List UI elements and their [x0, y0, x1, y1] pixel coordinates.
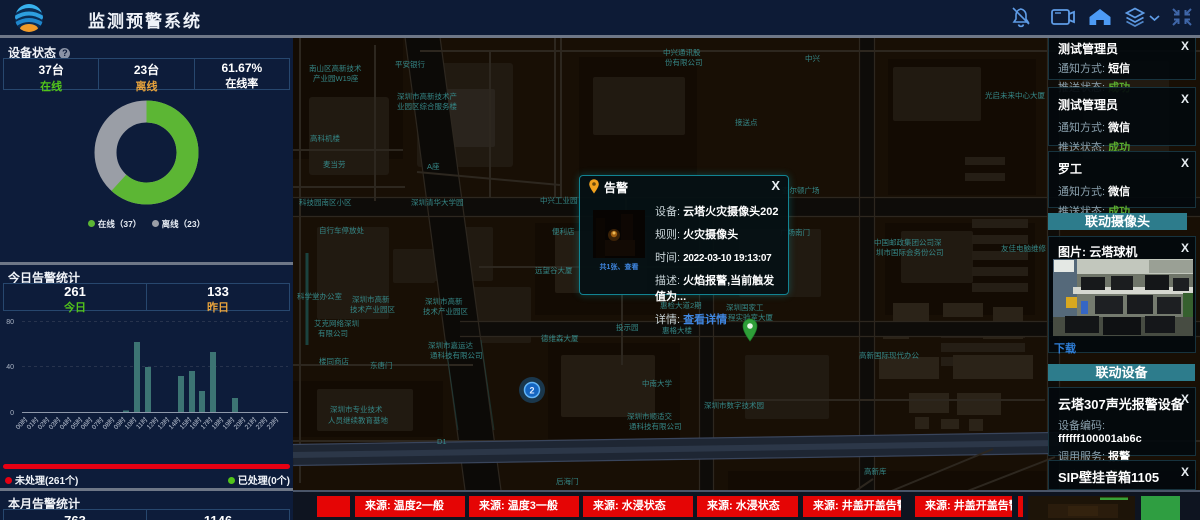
svg-text:德维森大厦: 德维森大厦 — [541, 333, 579, 343]
svg-text:通科技有限公司: 通科技有限公司 — [629, 421, 682, 431]
svg-text:深圳市高新: 深圳市高新 — [425, 296, 463, 306]
svg-text:东唐门: 东唐门 — [370, 360, 393, 370]
svg-text:高新库: 高新库 — [864, 466, 887, 476]
svg-text:中兴: 中兴 — [805, 53, 820, 63]
svg-text:中南大学: 中南大学 — [642, 378, 672, 388]
svg-text:圳市国际会务份公司: 圳市国际会务份公司 — [876, 247, 944, 257]
svg-text:科技园南区小区: 科技园南区小区 — [299, 197, 352, 207]
svg-text:0: 0 — [10, 410, 14, 417]
svg-text:楼同商店: 楼同商店 — [319, 356, 349, 366]
svg-text:平安银行: 平安银行 — [395, 59, 425, 69]
svg-text:80: 80 — [6, 319, 14, 326]
svg-text:A座: A座 — [427, 161, 440, 171]
svg-text:南山区高新技术: 南山区高新技术 — [309, 63, 362, 73]
svg-text:高科机楼: 高科机楼 — [310, 133, 340, 143]
svg-text:业园区综合服务楼: 业园区综合服务楼 — [397, 101, 457, 111]
svg-text:中国邮政集团公司深: 中国邮政集团公司深 — [874, 237, 942, 247]
svg-text:深圳市嘉运达: 深圳市嘉运达 — [428, 340, 473, 350]
svg-text:深圳市高新: 深圳市高新 — [352, 294, 390, 304]
svg-text:自行车停放处: 自行车停放处 — [319, 225, 364, 235]
svg-text:中兴通讯股: 中兴通讯股 — [663, 47, 701, 57]
svg-text:麦当劳: 麦当劳 — [323, 159, 346, 169]
svg-text:后海门: 后海门 — [556, 476, 579, 486]
svg-text:友佳电脑维修: 友佳电脑维修 — [1001, 243, 1046, 253]
svg-text:D1: D1 — [437, 437, 447, 446]
svg-text:中兴工业园: 中兴工业园 — [540, 195, 578, 205]
svg-text:份有限公司: 份有限公司 — [665, 57, 703, 67]
svg-text:深圳市顺适交: 深圳市顺适交 — [627, 411, 672, 421]
svg-text:投示园: 投示园 — [616, 322, 639, 332]
svg-text:高新国际现代办公: 高新国际现代办公 — [859, 350, 919, 360]
svg-text:便利店: 便利店 — [552, 226, 575, 236]
svg-text:有限公司: 有限公司 — [318, 328, 348, 338]
svg-text:艾克网络深圳: 艾克网络深圳 — [314, 318, 359, 328]
svg-text:接送点: 接送点 — [735, 117, 758, 127]
svg-text:深圳市专业技术: 深圳市专业技术 — [330, 404, 383, 414]
svg-text:技术产业园区: 技术产业园区 — [350, 304, 395, 314]
svg-text:通科技有限公司: 通科技有限公司 — [430, 350, 483, 360]
svg-text:深圳清华大学园: 深圳清华大学园 — [411, 197, 464, 207]
svg-text:科学堂办公室: 科学堂办公室 — [297, 291, 342, 301]
svg-text:远望谷大厦: 远望谷大厦 — [535, 265, 573, 275]
svg-text:40: 40 — [6, 364, 14, 371]
svg-text:产业园W19座: 产业园W19座 — [313, 73, 359, 83]
svg-text:深圳市高新技术产: 深圳市高新技术产 — [397, 91, 457, 101]
svg-text:2: 2 — [529, 386, 534, 396]
svg-text:技术产业园区: 技术产业园区 — [423, 306, 468, 316]
svg-text:光启未来中心大厦: 光启未来中心大厦 — [985, 90, 1045, 100]
svg-text:人员继续教育基地: 人员继续教育基地 — [328, 415, 388, 425]
svg-text:深圳市数字技术园: 深圳市数字技术园 — [704, 400, 764, 410]
